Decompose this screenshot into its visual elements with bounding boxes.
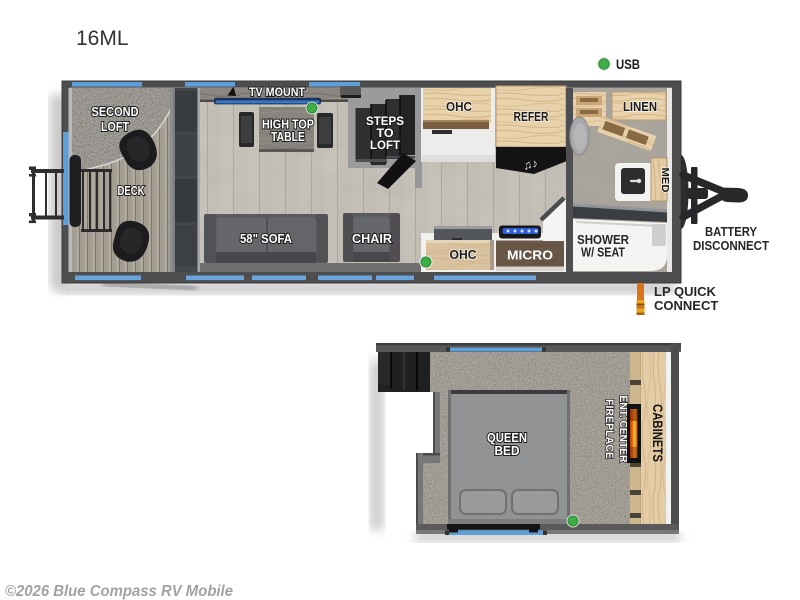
svg-text:W/ SEAT: W/ SEAT	[581, 246, 625, 260]
svg-text:DECK: DECK	[118, 184, 145, 198]
svg-text:16ML: 16ML	[76, 27, 129, 50]
svg-text:TABLE: TABLE	[271, 130, 305, 144]
svg-text:TO: TO	[377, 128, 394, 140]
svg-text:OHC: OHC	[446, 100, 472, 114]
svg-text:CHAIR: CHAIR	[352, 231, 393, 246]
svg-text:CABINETS: CABINETS	[650, 404, 666, 462]
svg-text:58" SOFA: 58" SOFA	[240, 231, 293, 246]
svg-text:CONNECT: CONNECT	[654, 298, 718, 313]
svg-text:QUEEN: QUEEN	[487, 431, 527, 445]
svg-text:LINEN: LINEN	[623, 100, 657, 114]
svg-text:©2026 Blue Compass RV Mobile: ©2026 Blue Compass RV Mobile	[5, 583, 233, 600]
svg-text:MED: MED	[659, 168, 671, 193]
svg-text:STEPS: STEPS	[366, 116, 404, 128]
svg-text:BED: BED	[495, 444, 520, 458]
svg-text:FIREPLACE: FIREPLACE	[603, 399, 615, 459]
svg-text:LOFT: LOFT	[101, 120, 129, 134]
svg-text:MICRO: MICRO	[507, 249, 553, 263]
svg-text:LP QUICK: LP QUICK	[654, 284, 716, 299]
svg-text:BATTERY: BATTERY	[705, 224, 757, 239]
svg-text:USB: USB	[616, 57, 640, 72]
svg-text:OHC: OHC	[450, 248, 477, 262]
svg-text:SECOND: SECOND	[92, 105, 139, 119]
svg-text:TV MOUNT: TV MOUNT	[249, 85, 306, 99]
svg-text:REFER: REFER	[514, 110, 549, 124]
svg-text:LOFT: LOFT	[370, 140, 400, 152]
svg-text:DISCONNECT: DISCONNECT	[693, 238, 769, 253]
